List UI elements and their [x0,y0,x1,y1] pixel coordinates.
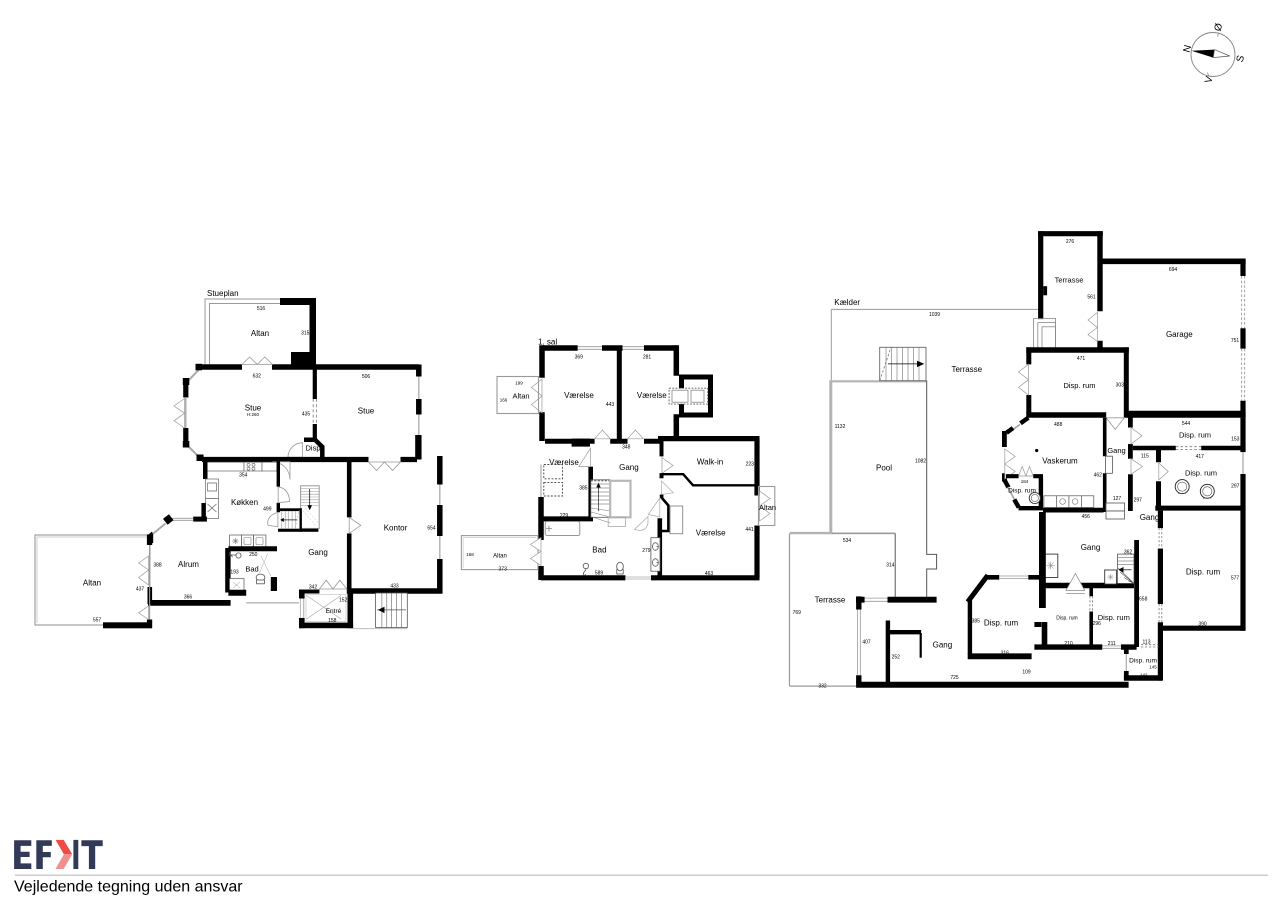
svg-text:Bad: Bad [245,565,258,574]
svg-text:115: 115 [1141,453,1149,459]
svg-text:Disp. rum: Disp. rum [1179,430,1211,439]
svg-text:388: 388 [153,563,162,569]
svg-text:Bad: Bad [592,546,606,555]
svg-text:Kælder: Kælder [834,298,860,307]
svg-text:193: 193 [230,570,239,576]
svg-text:252: 252 [892,655,901,661]
svg-text:Disp. rum: Disp. rum [1098,613,1130,622]
svg-text:168: 168 [466,552,474,557]
svg-text:Gang: Gang [1081,543,1101,552]
svg-text:314: 314 [886,563,895,569]
svg-text:279: 279 [642,548,651,554]
svg-text:Disp. rum: Disp. rum [1185,469,1217,478]
svg-text:Værelse: Værelse [564,391,594,400]
svg-text:315: 315 [301,331,310,337]
svg-text:725: 725 [950,675,959,681]
svg-text:Disp. rum: Disp. rum [1129,657,1157,664]
svg-text:561: 561 [1087,295,1096,301]
svg-text:Vejledende tegning uden ansvar: Vejledende tegning uden ansvar [14,879,243,896]
svg-text:113: 113 [1143,640,1151,646]
svg-text:441: 441 [745,527,754,533]
svg-text:462: 462 [1094,473,1103,479]
svg-text:Disp. rum: Disp. rum [1056,615,1077,621]
svg-text:Stueplan: Stueplan [207,289,239,298]
svg-text:589: 589 [595,571,604,577]
svg-text:1132: 1132 [835,424,846,430]
svg-text:Køkken: Køkken [231,498,258,507]
svg-text:Gang: Gang [933,641,953,650]
svg-text:544: 544 [1182,421,1191,427]
svg-text:1039: 1039 [929,312,940,318]
svg-text:276: 276 [1066,239,1075,245]
svg-text:366: 366 [184,595,193,601]
svg-text:471: 471 [1077,356,1086,362]
svg-text:Entré: Entré [326,608,342,615]
svg-text:390: 390 [1198,621,1207,627]
svg-text:Terrasse: Terrasse [951,365,982,374]
svg-text:153: 153 [1231,436,1240,442]
svg-text:506: 506 [362,374,371,380]
svg-text:Altan: Altan [493,553,507,559]
svg-text:499: 499 [263,506,272,512]
svg-text:385: 385 [972,618,981,624]
svg-text:Terrasse: Terrasse [815,596,846,605]
svg-text:658: 658 [1139,596,1148,602]
svg-text:373: 373 [499,567,508,573]
svg-text:488: 488 [1054,422,1063,428]
svg-text:158: 158 [328,618,337,624]
svg-text:Stue: Stue [358,407,375,416]
svg-text:Altan: Altan [512,392,529,401]
svg-text:Pool: Pool [876,464,892,473]
svg-text:Værelse: Værelse [696,529,726,538]
svg-text:443: 443 [606,402,615,408]
svg-text:516: 516 [257,306,266,312]
svg-text:H:260: H:260 [247,412,260,417]
svg-text:348: 348 [622,445,631,451]
svg-text:Disp. rum: Disp. rum [1063,381,1095,390]
svg-text:694: 694 [1169,267,1178,273]
svg-text:Terrasse: Terrasse [1055,276,1084,285]
svg-text:297: 297 [1231,484,1240,490]
svg-text:1082: 1082 [915,458,926,464]
svg-text:281: 281 [643,354,652,360]
svg-text:Værelse: Værelse [637,391,667,400]
svg-text:Gang: Gang [619,463,639,472]
svg-text:534: 534 [843,538,852,544]
svg-text:407: 407 [862,639,871,645]
svg-text:577: 577 [1231,576,1240,582]
svg-text:557: 557 [93,618,102,624]
svg-text:417: 417 [1196,454,1205,460]
svg-text:385: 385 [579,485,588,491]
svg-text:751: 751 [1231,338,1240,344]
svg-text:184: 184 [1021,479,1029,484]
svg-text:166: 166 [500,398,508,403]
svg-text:Vaskerum: Vaskerum [1042,457,1078,466]
svg-text:158: 158 [1034,505,1042,510]
svg-text:210: 210 [1064,641,1073,647]
svg-text:Gang: Gang [308,548,328,557]
svg-text:Altan: Altan [83,579,101,588]
svg-text:Gang: Gang [1107,446,1125,455]
svg-text:Disp. rum: Disp. rum [1186,567,1221,576]
svg-text:250: 250 [249,552,258,558]
svg-text:316: 316 [1001,650,1010,656]
svg-text:303: 303 [1116,382,1125,388]
svg-text:Gang: Gang [1140,513,1160,522]
svg-text:437: 437 [136,587,145,593]
svg-text:Garage: Garage [1166,330,1193,339]
svg-text:Alrum: Alrum [178,560,199,569]
svg-text:1. sal: 1. sal [538,338,557,347]
svg-text:332: 332 [818,683,827,689]
svg-text:127: 127 [1113,496,1122,502]
svg-text:Disp: Disp [305,444,320,453]
svg-text:369: 369 [575,354,584,360]
svg-text:Kontor: Kontor [384,524,408,533]
svg-text:654: 654 [427,526,436,532]
svg-text:Disp. rum: Disp. rum [984,619,1019,628]
svg-text:145: 145 [1149,665,1157,670]
svg-text:223: 223 [746,462,755,468]
svg-text:152: 152 [339,597,348,603]
svg-text:632: 632 [253,374,262,380]
svg-text:769: 769 [793,610,802,616]
svg-text:Altan: Altan [759,503,776,512]
svg-text:199: 199 [515,381,523,386]
svg-text:Walk-in: Walk-in [697,458,723,467]
svg-text:456: 456 [1082,514,1091,520]
svg-text:435: 435 [302,412,311,418]
svg-text:142: 142 [1140,672,1148,677]
svg-text:211: 211 [1108,641,1116,647]
svg-text:354: 354 [239,472,248,478]
svg-text:109: 109 [1022,669,1031,675]
svg-text:297: 297 [1134,497,1143,503]
svg-text:Altan: Altan [251,329,269,338]
